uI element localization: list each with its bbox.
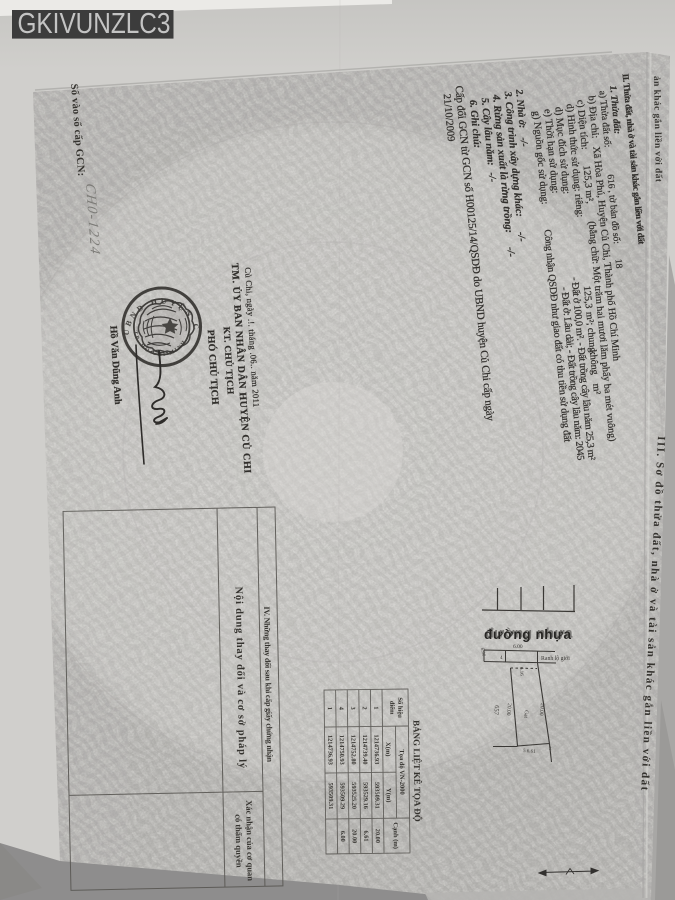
svg-text:593509.31: 593509.31	[327, 783, 334, 810]
svg-text:1: 1	[372, 706, 379, 709]
svg-text:5 6.61: 5 6.61	[523, 749, 536, 755]
svg-text:Số hiệu: Số hiệu	[396, 697, 403, 718]
svg-text:GKIVUNZLC3: GKIVUNZLC3	[18, 7, 171, 39]
svg-text:20.00: 20.00	[505, 703, 512, 716]
svg-text:Tọa độ VN-2000: Tọa độ VN-2000	[398, 749, 406, 794]
svg-text:Ranh lộ giới: Ranh lộ giới	[541, 656, 570, 662]
svg-text:Y(m): Y(m)	[385, 788, 392, 803]
svg-text:có thẩm quyền: có thẩm quyền	[233, 814, 244, 868]
svg-text:đường nhựa: đường nhựa	[486, 626, 574, 641]
svg-text:1: 1	[326, 707, 333, 710]
svg-text:20.00: 20.00	[374, 829, 381, 843]
svg-text:BẢNG LIỆT KÊ TỌA ĐỘ: BẢNG LIỆT KÊ TỌA ĐỘ	[411, 720, 422, 822]
svg-text:6.00: 6.00	[513, 644, 523, 650]
svg-text:Gat: Gat	[522, 710, 529, 719]
svg-text:Cạnh (m): Cạnh (m)	[392, 822, 399, 849]
svg-text:1214736.93: 1214736.93	[373, 734, 380, 764]
svg-text:20.00: 20.00	[351, 829, 358, 843]
svg-text:1214739.40: 1214739.40	[361, 735, 368, 765]
svg-text:593509.31: 593509.31	[373, 782, 380, 809]
svg-text:6.00: 6.00	[339, 831, 346, 842]
svg-text:6.16: 6.16	[518, 667, 523, 676]
svg-text:1214752.80: 1214752.80	[349, 735, 356, 765]
svg-text:657: 657	[492, 705, 500, 716]
svg-text:điểm: điểm	[388, 701, 395, 715]
svg-text:593529.16: 593529.16	[362, 782, 369, 809]
svg-text:3: 3	[349, 707, 356, 710]
svg-text:593509.29: 593509.29	[338, 782, 345, 809]
svg-text:Xác nhận của cơ quan: Xác nhận của cơ quan	[244, 800, 256, 881]
svg-text:X(m): X(m)	[384, 742, 391, 757]
svg-text:1214750.93: 1214750.93	[338, 735, 345, 765]
svg-text:6.61: 6.61	[362, 830, 369, 841]
svg-text:593525.20: 593525.20	[350, 782, 357, 809]
svg-text:1214736.93: 1214736.93	[326, 735, 333, 765]
svg-text:2: 2	[361, 706, 368, 709]
svg-text:ản khác gắn liền với đất: ản khác gắn liền với đất	[651, 76, 664, 183]
